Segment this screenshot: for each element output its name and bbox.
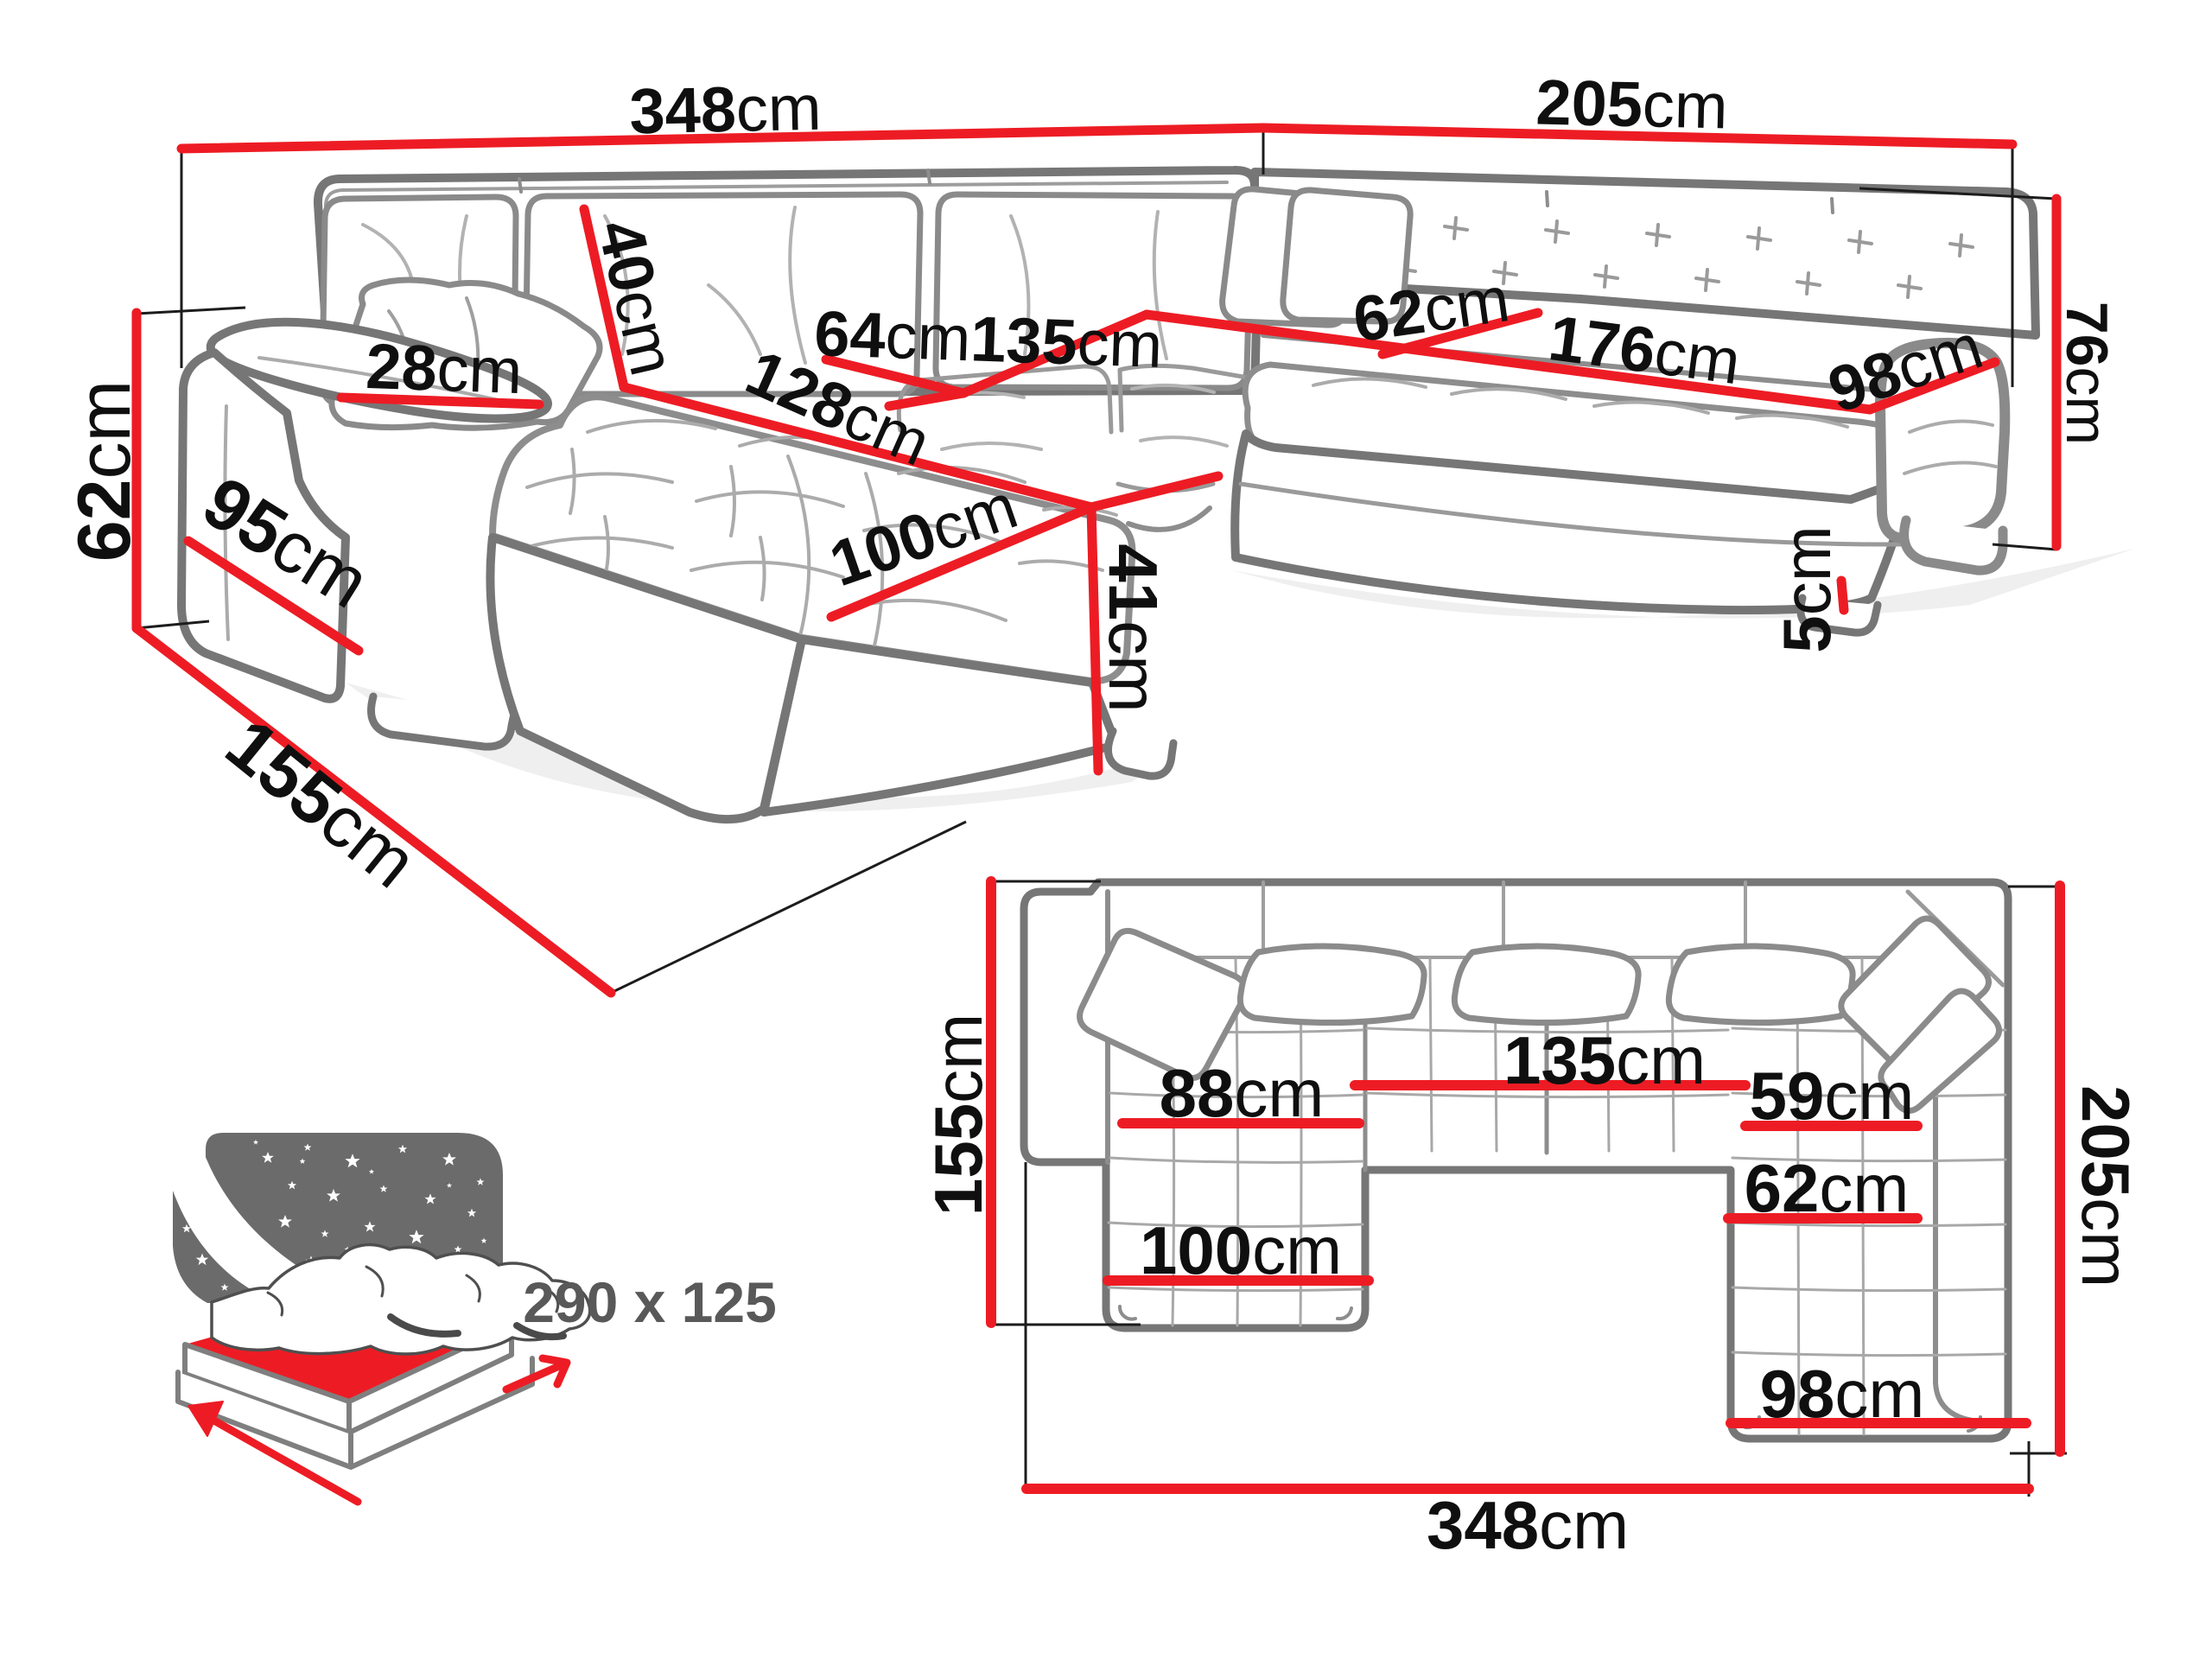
svg-text:290 x 125: 290 x 125 xyxy=(523,1270,777,1334)
svg-text:100cm: 100cm xyxy=(1140,1212,1342,1288)
svg-text:205cm: 205cm xyxy=(2068,1085,2144,1287)
svg-text:28cm: 28cm xyxy=(365,330,524,407)
svg-text:76cm: 76cm xyxy=(2054,302,2120,445)
svg-text:59cm: 59cm xyxy=(1750,1058,1915,1134)
svg-text:155cm: 155cm xyxy=(920,1014,996,1216)
svg-text:98cm: 98cm xyxy=(1760,1356,1925,1432)
svg-text:62cm: 62cm xyxy=(63,380,146,562)
svg-text:205cm: 205cm xyxy=(1535,66,1729,142)
svg-text:41cm: 41cm xyxy=(1095,543,1172,713)
svg-text:88cm: 88cm xyxy=(1160,1055,1325,1131)
svg-text:348cm: 348cm xyxy=(1427,1487,1629,1563)
svg-text:62cm: 62cm xyxy=(1745,1150,1910,1226)
svg-text:64cm135cm: 64cm135cm xyxy=(813,297,1164,381)
svg-text:348cm: 348cm xyxy=(629,72,823,148)
svg-text:176cm: 176cm xyxy=(1545,302,1745,397)
svg-text:135cm: 135cm xyxy=(1503,1022,1706,1098)
svg-text:5cm: 5cm xyxy=(1769,525,1845,652)
